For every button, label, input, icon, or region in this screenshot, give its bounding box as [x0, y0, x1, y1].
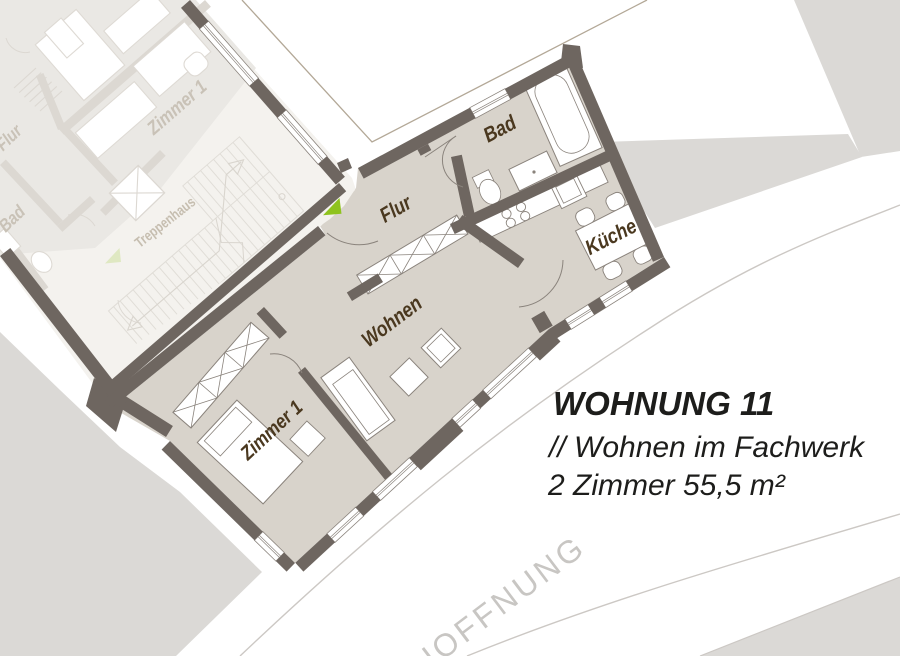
svg-text:WOHNUNG 11: WOHNUNG 11 — [553, 385, 774, 422]
svg-text:2 Zimmer 55,5 m²: 2 Zimmer 55,5 m² — [547, 469, 786, 502]
svg-text:// Wohnen im Fachwerk: // Wohnen im Fachwerk — [547, 431, 866, 464]
